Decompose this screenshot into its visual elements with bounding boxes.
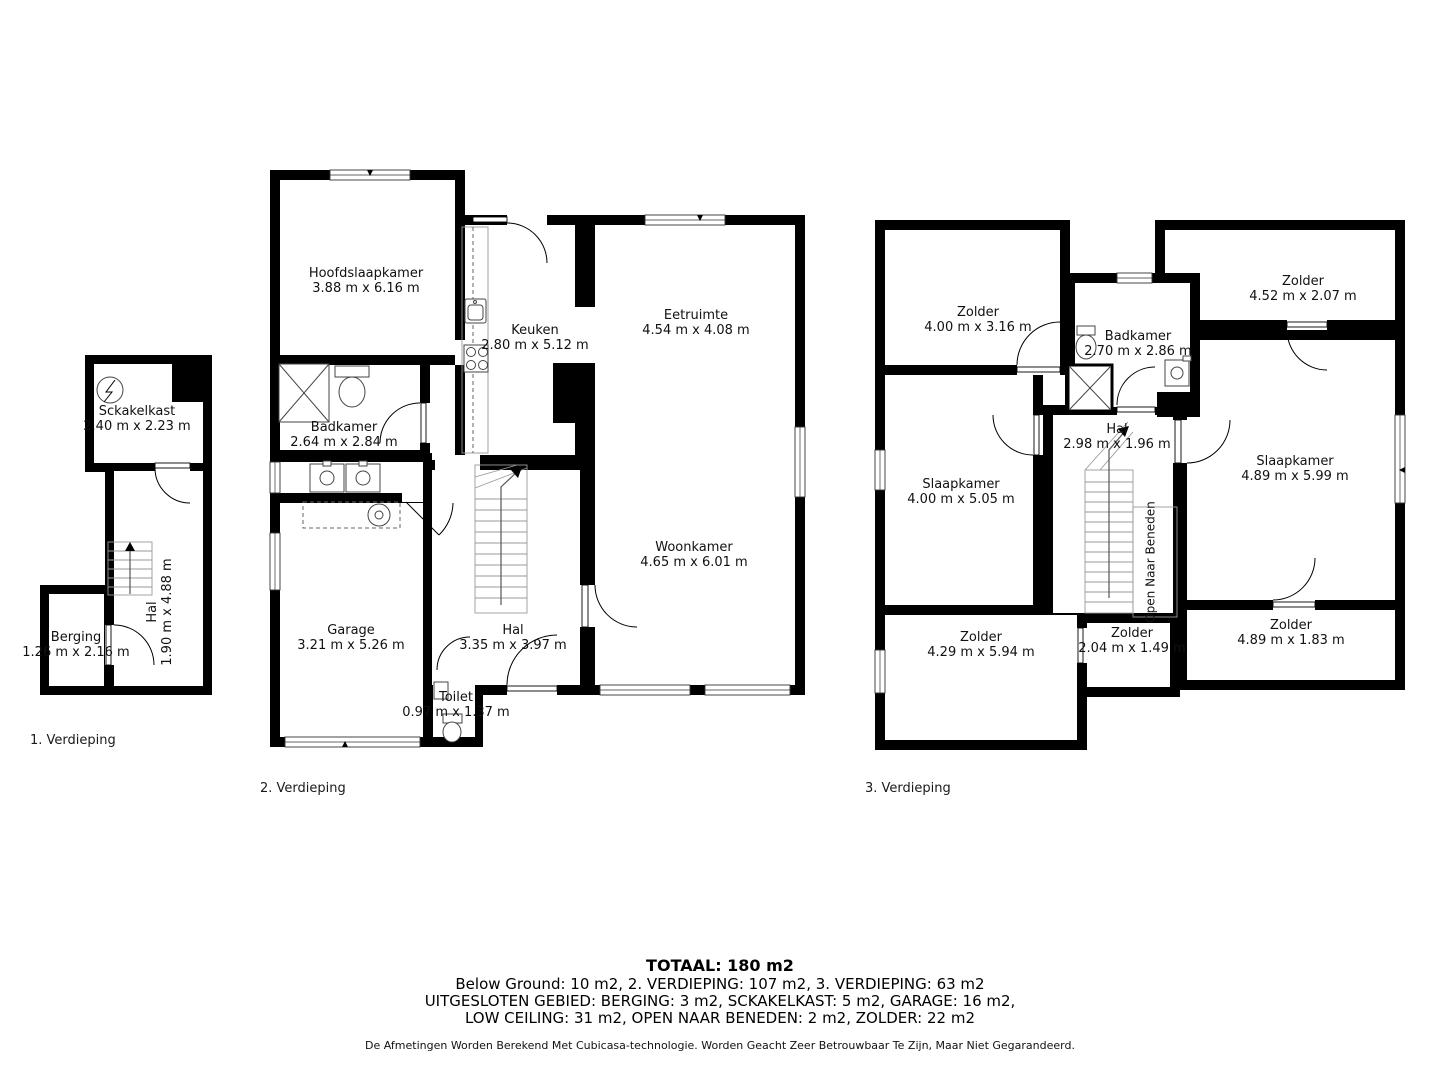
room-label-zolder-tr: Zolder 4.52 m x 2.07 m <box>1249 274 1356 304</box>
room-label-zolder-br: Zolder 4.89 m x 1.83 m <box>1237 618 1344 648</box>
shaft-icon <box>1068 365 1112 411</box>
floor-label-3: 3. Verdieping <box>865 781 951 796</box>
floorplan-level-2 <box>265 165 810 755</box>
summary-block: TOTAAL: 180 m2 Below Ground: 10 m2, 2. V… <box>0 956 1440 1052</box>
room-label-hal-3: Hal 2.98 m x 1.96 m <box>1063 422 1170 452</box>
sink-icon <box>1165 356 1191 386</box>
room-label-hal-2: Hal 3.35 m x 3.97 m <box>459 623 566 653</box>
floor-label-1: 1. Verdieping <box>30 733 116 748</box>
electric-meter-icon <box>97 377 123 403</box>
walls-level-2 <box>270 170 805 747</box>
summary-line-1: Below Ground: 10 m2, 2. VERDIEPING: 107 … <box>0 976 1440 993</box>
room-label-hoofdslaapkamer: Hoofdslaapkamer 3.88 m x 6.16 m <box>309 266 423 296</box>
room-label-zolder-bm: Zolder 2.04 m x 1.49 m <box>1078 626 1185 656</box>
room-label-zolder-tl: Zolder 4.00 m x 3.16 m <box>924 305 1031 335</box>
room-label-badkamer-3: Badkamer 2.70 m x 2.86 m <box>1084 329 1191 359</box>
room-label-sckakelkast: Sckakelkast 2.40 m x 2.23 m <box>83 404 190 434</box>
room-label-eetruimte: Eetruimte 4.54 m x 4.08 m <box>642 308 749 338</box>
room-label-woonkamer: Woonkamer 4.65 m x 6.01 m <box>640 540 747 570</box>
room-label-keuken: Keuken 2.80 m x 5.12 m <box>481 323 588 353</box>
room-label-toilet: Toilet 0.97 m x 1.37 m <box>402 690 509 720</box>
room-label-badkamer-2: Badkamer 2.64 m x 2.84 m <box>290 420 397 450</box>
shower-icon <box>279 364 329 422</box>
room-label-zolder-bl: Zolder 4.29 m x 5.94 m <box>927 630 1034 660</box>
floor-label-2: 2. Verdieping <box>260 781 346 796</box>
room-label-slaapkamer-right: Slaapkamer 4.89 m x 5.99 m <box>1241 454 1348 484</box>
summary-total: TOTAAL: 180 m2 <box>0 956 1440 976</box>
room-label-hal-1: Hal 1.90 m x 4.88 m <box>145 558 175 665</box>
summary-line-2: UITGESLOTEN GEBIED: BERGING: 3 m2, SCKAK… <box>0 993 1440 1010</box>
room-label-slaapkamer-left: Slaapkamer 4.00 m x 5.05 m <box>907 477 1014 507</box>
room-label-berging: Berging 1.26 m x 2.16 m <box>22 630 129 660</box>
summary-line-3: LOW CEILING: 31 m2, OPEN NAAR BENEDEN: 2… <box>0 1010 1440 1027</box>
room-label-garage: Garage 3.21 m x 5.26 m <box>297 623 404 653</box>
summary-disclaimer: De Afmetingen Worden Berekend Met Cubica… <box>0 1039 1440 1052</box>
room-label-open-naar-beneden: Open Naar Beneden <box>1144 501 1159 623</box>
